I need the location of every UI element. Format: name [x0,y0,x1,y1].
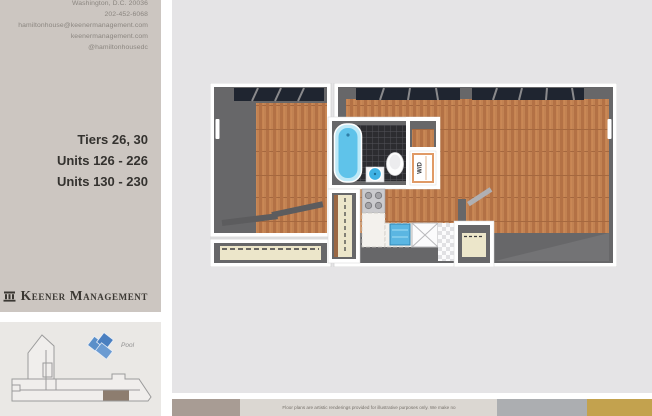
wall-sill [216,119,220,139]
footer-bar-gray [497,399,587,416]
pantry-closet [328,189,360,263]
stove [362,189,385,213]
bedroom-closet [210,239,331,267]
unit-info: Tiers 26, 30 Units 126 - 226 Units 130 -… [57,129,148,192]
flyer-page: Washington, D.C. 20036 202-452-6068 hami… [0,0,652,416]
building-crest-icon [3,290,16,303]
closet-shelf [220,246,321,260]
contact-info: Washington, D.C. 20036 202-452-6068 hami… [18,0,148,53]
contact-social: @hamiltonhousedc [18,42,148,53]
units-range-1: Units 126 - 226 [57,150,148,171]
bathroom: W/D [328,117,440,189]
bedroom-windows [234,88,324,101]
brand-logo: Keener Management [3,288,148,304]
bathtub [335,124,362,182]
contact-website: keenermanagement.com [18,31,148,42]
footer-bar-taupe [172,399,240,416]
brand-name: Keener Management [21,288,148,304]
floor-plan-panel: W/D [172,0,652,393]
pool-label: Pool [121,342,135,349]
contact-line: Washington, D.C. 20036 [18,0,148,9]
site-plan-svg: Pool [0,322,161,416]
dishwasher [390,224,410,245]
x-marked-cabinet [412,223,438,247]
disclaimer-text: Floor plans are artistic renderings prov… [250,405,488,411]
sink [366,167,384,182]
site-plan-block: Pool [0,322,161,416]
unit-location-marker [103,391,129,401]
hall-tile-floor [438,223,454,261]
wall-sill [608,119,612,139]
contact-email: hamiltonhouse@keenermanagement.com [18,20,148,31]
sidebar: Washington, D.C. 20036 202-452-6068 hami… [0,0,161,312]
washer-dryer: W/D [410,151,436,185]
floor-plan-svg: W/D [210,83,617,267]
tiers-label: Tiers 26, 30 [57,129,148,150]
contact-phone: 202-452-6068 [18,9,148,20]
toilet [387,153,404,176]
entry-closet [454,221,494,267]
washer-dryer-label: W/D [418,162,424,174]
bedroom [210,83,331,237]
footer-bar-gold [587,399,652,416]
pool-shape [88,333,114,360]
counter [362,213,385,247]
units-range-2: Units 130 - 230 [57,171,148,192]
